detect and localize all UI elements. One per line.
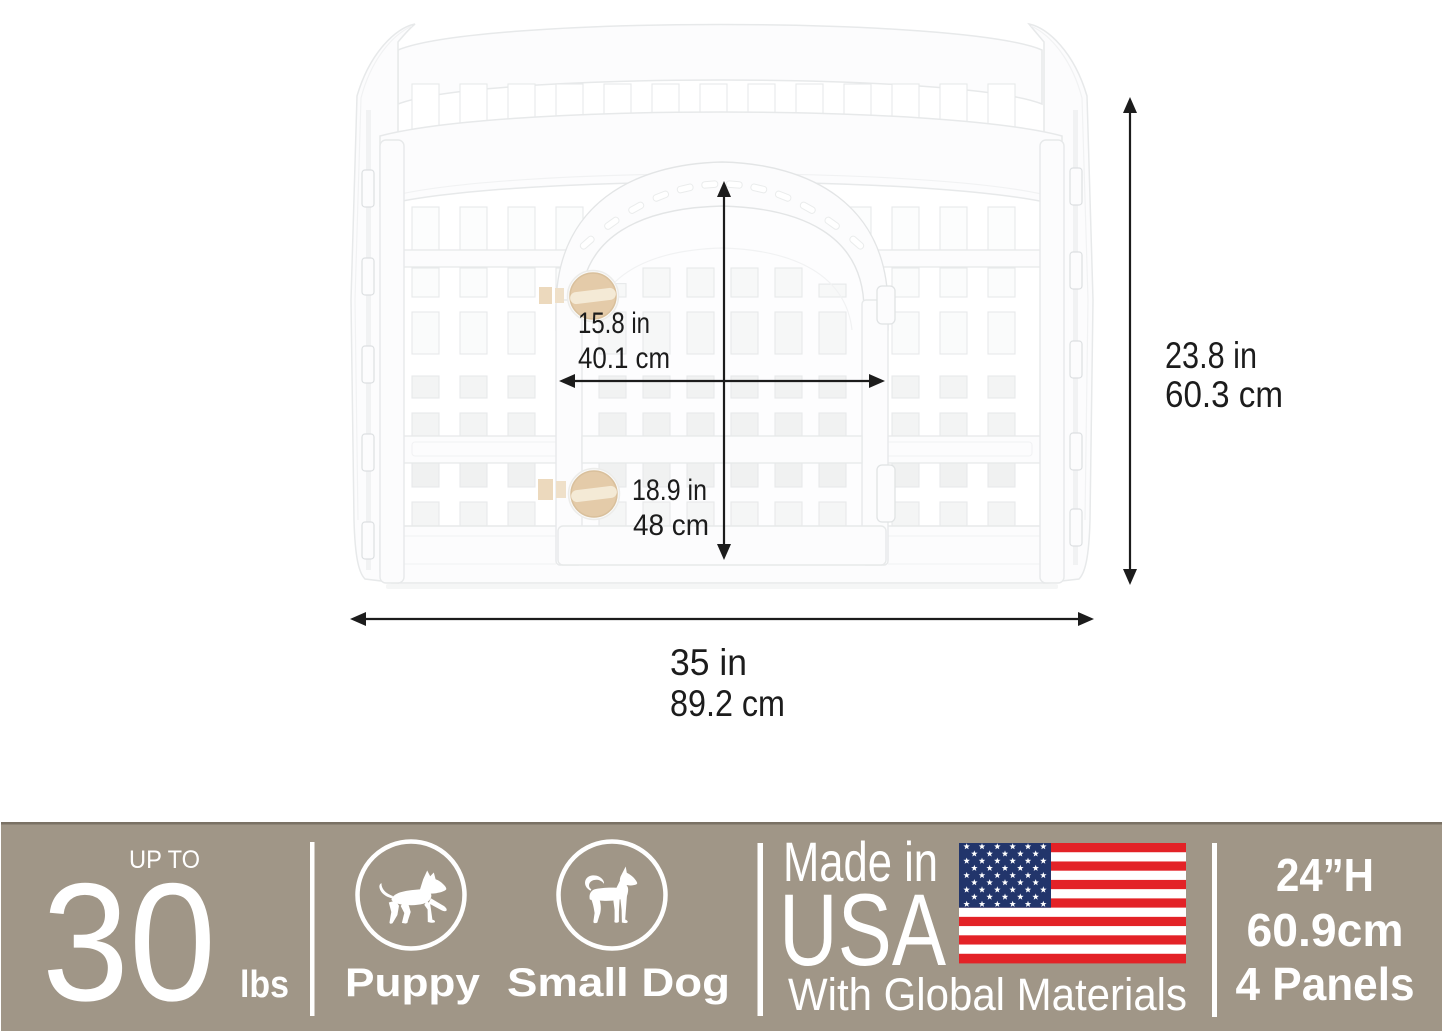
svg-text:60.9cm: 60.9cm <box>1247 904 1404 956</box>
svg-text:With Global Materials: With Global Materials <box>788 969 1187 1020</box>
svg-text:15.8 in: 15.8 in <box>578 307 650 340</box>
svg-text:23.8 in: 23.8 in <box>1165 335 1257 376</box>
svg-text:Small Dog: Small Dog <box>507 961 730 1005</box>
svg-text:60.3 cm: 60.3 cm <box>1165 374 1283 415</box>
svg-text:lbs: lbs <box>240 964 289 1006</box>
svg-text:40.1 cm: 40.1 cm <box>578 342 670 375</box>
svg-text:89.2 cm: 89.2 cm <box>670 683 785 724</box>
svg-text:24”H: 24”H <box>1276 849 1374 901</box>
svg-text:4 Panels: 4 Panels <box>1236 958 1415 1010</box>
svg-text:48 cm: 48 cm <box>633 509 709 542</box>
svg-text:18.9 in: 18.9 in <box>632 474 707 507</box>
svg-text:Puppy: Puppy <box>345 961 481 1005</box>
svg-text:35 in: 35 in <box>670 642 747 683</box>
svg-text:30: 30 <box>42 848 216 1035</box>
